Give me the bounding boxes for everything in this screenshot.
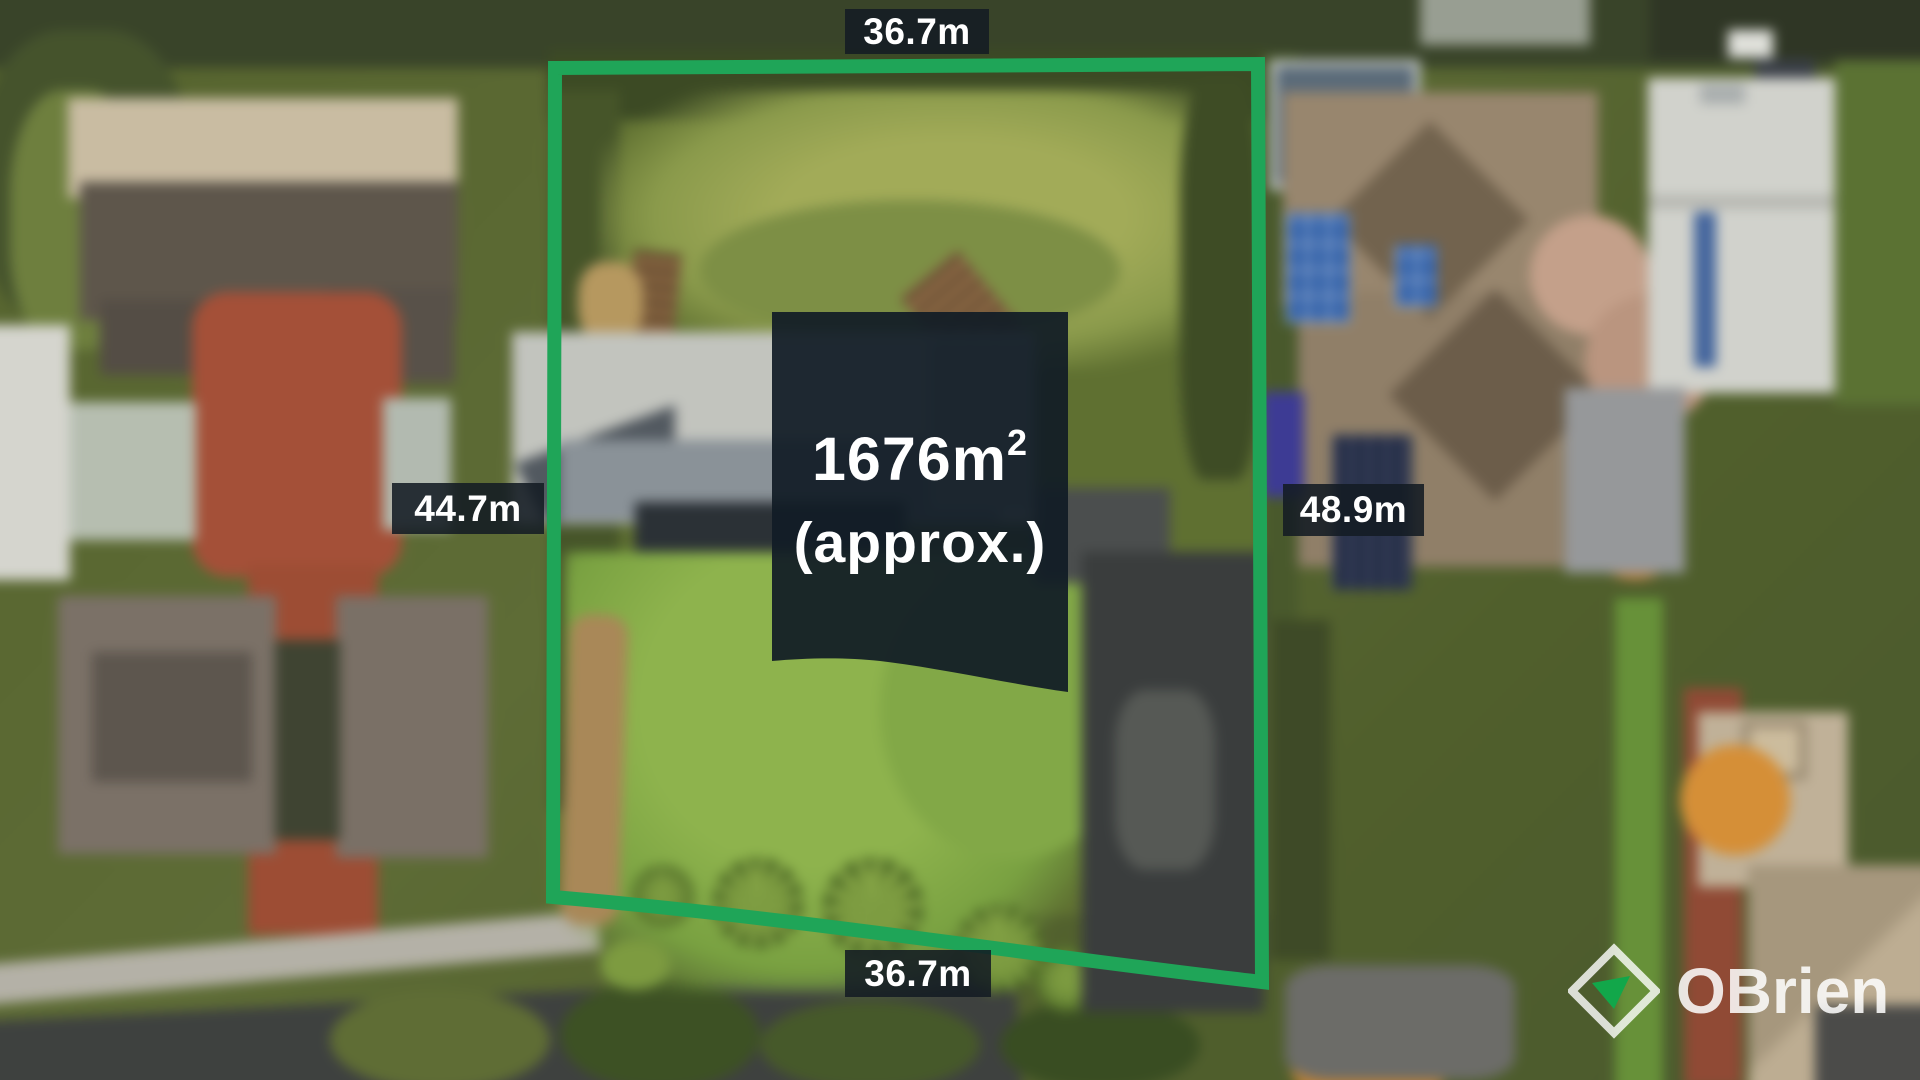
obrien-logo: OBrien [1568, 943, 1889, 1039]
obrien-diamond-icon [1568, 943, 1660, 1039]
aerial-property-photo: 1676m2 (approx.) 36.7m 44.7m 48.9m 36.7m… [0, 0, 1920, 1080]
area-qualifier: (approx.) [794, 510, 1047, 576]
dimension-label-left: 44.7m [392, 483, 544, 534]
dimension-label-right: 48.9m [1283, 484, 1424, 536]
area-superscript: 2 [1007, 422, 1028, 463]
area-value: 1676m2 [812, 424, 1028, 494]
area-overlay-text: 1676m2 (approx.) [772, 330, 1068, 670]
obrien-wordmark: OBrien [1676, 954, 1889, 1028]
dimension-label-top: 36.7m [845, 9, 989, 54]
dimension-label-bottom: 36.7m [845, 950, 991, 997]
